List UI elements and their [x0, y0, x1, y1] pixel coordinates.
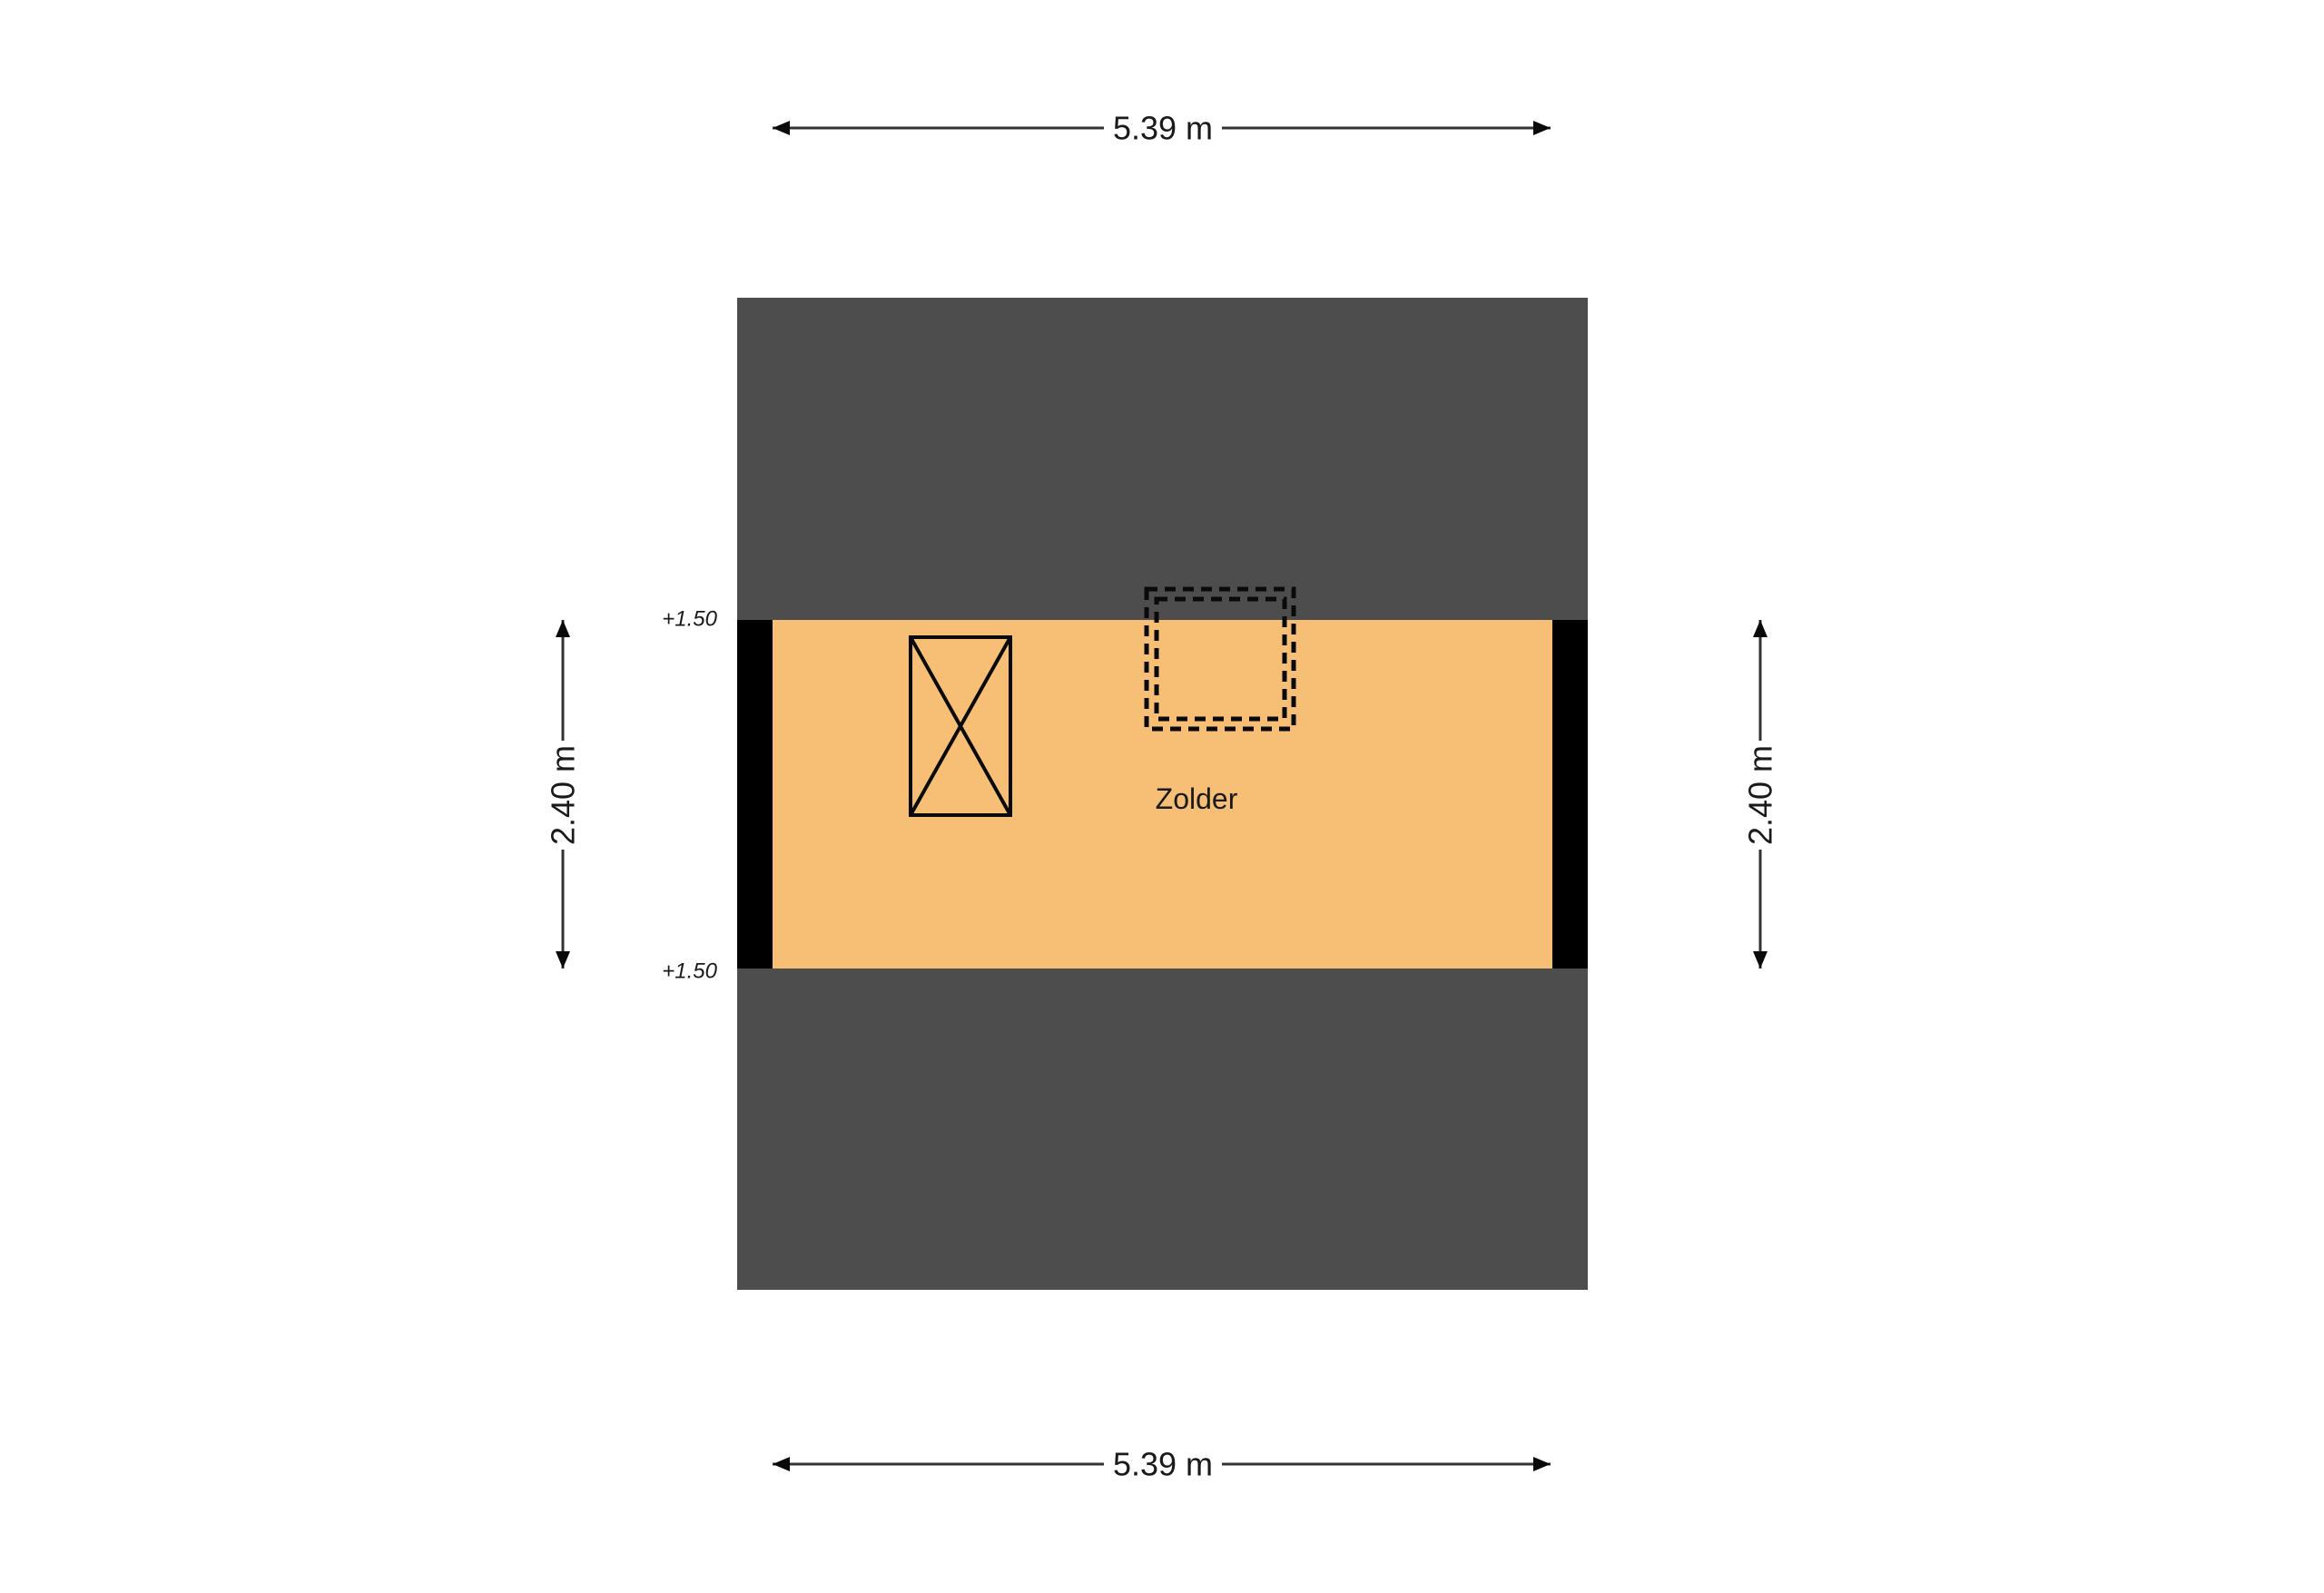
wall-left	[737, 620, 773, 969]
room-label: Zolder	[1156, 782, 1238, 815]
dimension-top-label: 5.39 m	[1113, 110, 1213, 147]
dimension-left-label: 2.40 m	[545, 745, 582, 845]
level-label-bottom: +1.50	[662, 959, 717, 984]
floorplan-page: Zolder +1.50 +1.50 5.39 m 5.39 m 2.40 m	[0, 0, 2324, 1593]
dimension-right-label: 2.40 m	[1742, 745, 1779, 845]
wall-right	[1552, 620, 1588, 969]
dimension-bottom-label: 5.39 m	[1113, 1446, 1213, 1483]
level-label-top: +1.50	[662, 607, 717, 632]
floorplan-canvas: Zolder +1.50 +1.50 5.39 m 5.39 m 2.40 m	[0, 0, 2324, 1593]
